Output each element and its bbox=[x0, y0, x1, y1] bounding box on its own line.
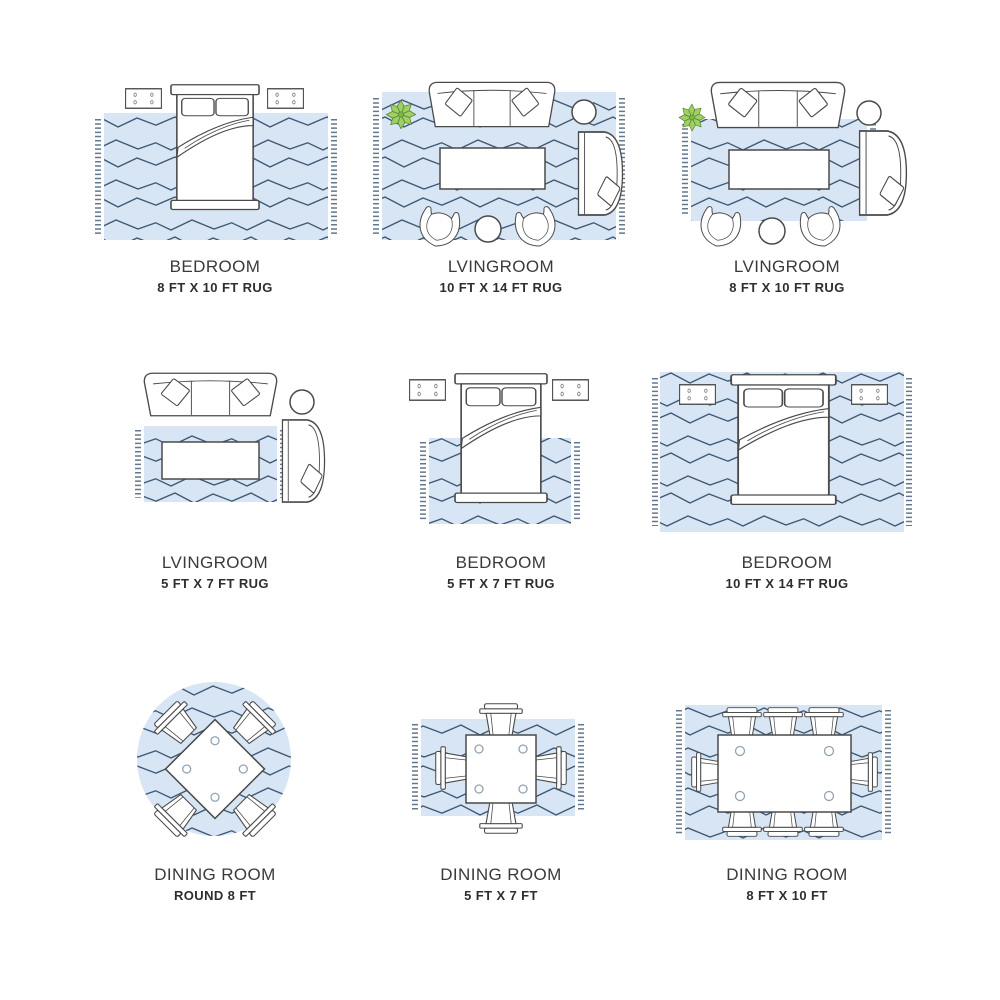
dining-5x7-illustration bbox=[366, 680, 636, 858]
card-dining-8x10: DINING ROOM 8 FT X 10 FT bbox=[644, 680, 930, 903]
armchair-icon bbox=[860, 131, 907, 215]
room-label: BEDROOM bbox=[170, 258, 261, 277]
bedroom-5x7-illustration bbox=[366, 368, 636, 546]
side-table-icon bbox=[572, 100, 596, 124]
plant-icon bbox=[386, 100, 415, 129]
armchair-icon bbox=[282, 420, 324, 502]
bed-icon bbox=[171, 85, 259, 210]
room-label: LVINGROOM bbox=[448, 258, 554, 277]
armchair-icon bbox=[579, 132, 623, 215]
livingroom-5x7-illustration bbox=[80, 368, 350, 546]
dining-table-icon bbox=[466, 735, 536, 803]
card-dining-5x7: DINING ROOM 5 FT X 7 FT bbox=[358, 680, 644, 903]
pouf-icon bbox=[759, 218, 785, 244]
plant-icon bbox=[679, 104, 705, 131]
dining-round-8ft-illustration bbox=[80, 680, 350, 858]
card-bedroom-5x7: BEDROOM 5 FT X 7 FT RUG bbox=[358, 368, 644, 680]
card-livingroom-10x14: LVINGROOM 10 FT X 14 FT RUG bbox=[358, 72, 644, 368]
side-table-icon bbox=[290, 390, 314, 414]
sofa-icon bbox=[711, 82, 844, 127]
bed-icon bbox=[455, 374, 547, 503]
card-bedroom-8x10: BEDROOM 8 FT X 10 FT RUG bbox=[72, 72, 358, 368]
rug-size-label: 8 FT X 10 FT RUG bbox=[157, 280, 272, 295]
room-label: BEDROOM bbox=[742, 554, 833, 573]
nightstand-icon bbox=[680, 385, 716, 405]
bed-icon bbox=[731, 375, 836, 505]
rug-size-label: ROUND 8 FT bbox=[174, 888, 256, 903]
bedroom-10x14-illustration bbox=[652, 368, 922, 546]
coffee-table-icon bbox=[162, 442, 259, 479]
bedroom-8x10-illustration bbox=[80, 72, 350, 250]
room-label: DINING ROOM bbox=[154, 866, 276, 885]
livingroom-10x14-illustration bbox=[366, 72, 636, 250]
nightstand-icon bbox=[126, 89, 162, 109]
room-label: LVINGROOM bbox=[734, 258, 840, 277]
card-livingroom-8x10: LVINGROOM 8 FT X 10 FT RUG bbox=[644, 72, 930, 368]
rug-size-label: 5 FT X 7 FT RUG bbox=[161, 576, 269, 591]
rug-size-label: 8 FT X 10 FT bbox=[746, 888, 827, 903]
card-dining-round-8ft: DINING ROOM ROUND 8 FT bbox=[72, 680, 358, 903]
card-livingroom-5x7: LVINGROOM 5 FT X 7 FT RUG bbox=[72, 368, 358, 680]
nightstand-icon bbox=[268, 89, 304, 109]
sofa-icon bbox=[429, 82, 555, 126]
rug-size-guide: BEDROOM 8 FT X 10 FT RUG LVINGROOM 10 FT… bbox=[0, 0, 1000, 903]
rug-size-label: 10 FT X 14 FT RUG bbox=[439, 280, 562, 295]
nightstand-icon bbox=[852, 385, 888, 405]
nightstand-icon bbox=[410, 380, 446, 400]
side-table-icon bbox=[857, 101, 881, 125]
coffee-table-icon bbox=[440, 148, 545, 189]
livingroom-8x10-illustration bbox=[652, 72, 922, 250]
coffee-table-icon bbox=[729, 150, 829, 189]
rug-size-label: 8 FT X 10 FT RUG bbox=[729, 280, 844, 295]
rug-size-label: 5 FT X 7 FT RUG bbox=[447, 576, 555, 591]
nightstand-icon bbox=[553, 380, 589, 400]
room-label: BEDROOM bbox=[456, 554, 547, 573]
dining-8x10-illustration bbox=[652, 680, 922, 858]
sofa-icon bbox=[144, 373, 276, 415]
room-label: LVINGROOM bbox=[162, 554, 268, 573]
room-label: DINING ROOM bbox=[440, 866, 562, 885]
card-bedroom-10x14: BEDROOM 10 FT X 14 FT RUG bbox=[644, 368, 930, 680]
dining-table-icon bbox=[718, 735, 851, 812]
rug-size-label: 10 FT X 14 FT RUG bbox=[725, 576, 848, 591]
rug-size-label: 5 FT X 7 FT bbox=[464, 888, 538, 903]
pouf-icon bbox=[475, 216, 501, 242]
room-label: DINING ROOM bbox=[726, 866, 848, 885]
